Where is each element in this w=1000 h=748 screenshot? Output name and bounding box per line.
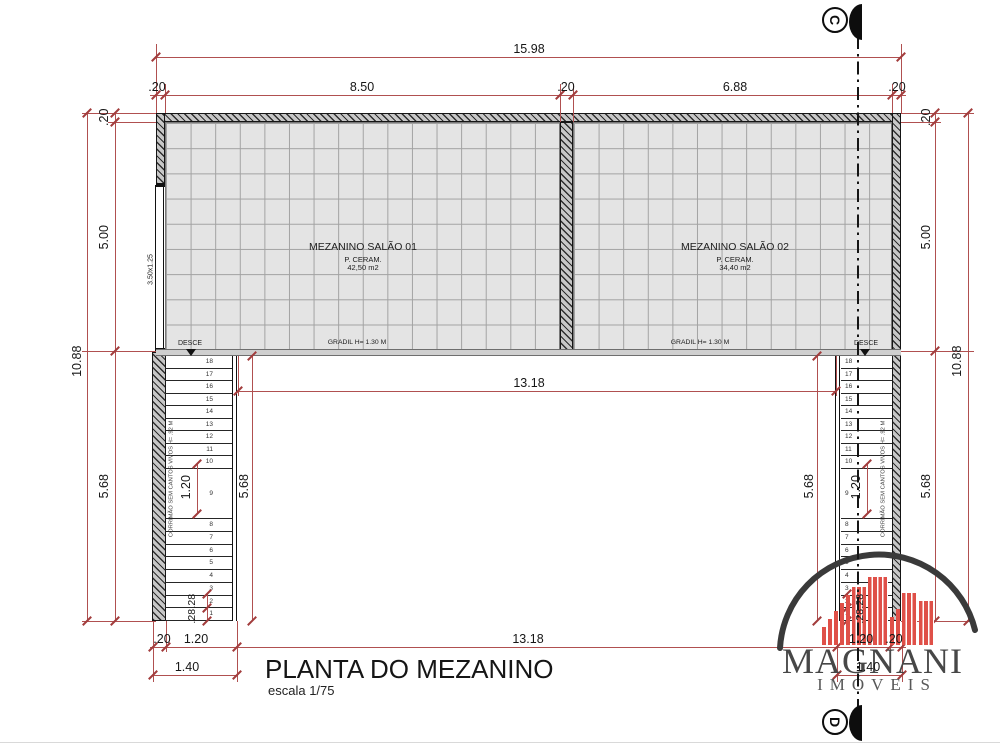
dim-tread: .28	[187, 605, 198, 627]
ext-line	[82, 621, 156, 622]
wall-middle	[560, 122, 573, 352]
room-2-area: 34,40 m2	[635, 264, 835, 272]
floor-mezanino-02	[573, 122, 892, 352]
dim-wall: .20	[98, 97, 111, 137]
handrail-label-left: CORRIMÃO SEM CANTOS VIVOS H= .92 M	[170, 391, 176, 566]
step-number: 17	[165, 369, 233, 382]
dim-opening-span: 13.18	[498, 633, 558, 646]
wall-top	[156, 113, 901, 122]
dim-line-opening-span	[238, 391, 836, 392]
ext-line	[82, 113, 156, 114]
window-left	[155, 185, 164, 352]
dim-wall: .20	[920, 97, 933, 137]
wall-left-lower	[152, 352, 166, 621]
dim-stair-depth: 5.68	[920, 466, 933, 506]
handrail-label-right: CORRIMÃO SEM CANTOS VIVOS H= .92 M	[882, 391, 888, 566]
window-size-label: 3.50x1.25	[148, 240, 155, 300]
room-1-name: MEZANINO SALÃO 01	[263, 242, 463, 253]
step-number: 3	[165, 583, 233, 596]
dim-line-overall-width	[156, 57, 901, 58]
room-1-finish: P. CERAM.	[263, 256, 463, 264]
room-label-1: MEZANINO SALÃO 01 P. CERAM. 42,50 m2	[263, 242, 463, 272]
dim-overall-width: 15.98	[499, 43, 559, 56]
step-number: 2	[165, 596, 233, 609]
logo-building	[919, 601, 934, 645]
desce-label-right: DESCE	[846, 340, 886, 347]
dim-line-landing-left	[197, 464, 198, 514]
dim-stair-depth: 5.68	[98, 466, 111, 506]
gradil-edge	[156, 349, 901, 356]
floorplan-sheet: MEZANINO SALÃO 01 P. CERAM. 42,50 m2 MEZ…	[0, 0, 1000, 748]
logo-subtitle: IMÓVEIS	[782, 675, 972, 695]
section-letter-d: D	[828, 717, 842, 727]
step-number: 17	[841, 369, 892, 382]
desce-label-left: DESCE	[170, 340, 210, 347]
dim-tread: .28	[855, 605, 866, 627]
drawing-title: PLANTA DO MEZANINO	[265, 654, 553, 685]
dim-wall: .20	[877, 81, 917, 94]
dim-stair-total: 1.40	[848, 661, 888, 674]
step-number: 18	[841, 356, 892, 369]
step-number: 18	[165, 356, 233, 369]
dim-landing: 1.20	[850, 467, 863, 507]
dim-wall: .20	[546, 81, 586, 94]
dim-wall: .20	[874, 633, 914, 646]
dim-mezz-depth: 5.00	[920, 217, 933, 257]
step-number: 4	[165, 570, 233, 583]
window-cap-top	[156, 183, 165, 187]
ext-line	[82, 351, 156, 352]
dim-opening-span: 13.18	[499, 377, 559, 390]
section-marker-c: C	[822, 7, 848, 33]
sheet-bottom-edge	[0, 742, 1000, 743]
step-number: 1	[165, 608, 233, 621]
room-2-finish: P. CERAM.	[635, 256, 835, 264]
dim-span-right: 6.88	[705, 81, 765, 94]
section-flag-d	[849, 705, 862, 741]
section-marker-d: D	[822, 709, 848, 735]
dim-overall-height: 10.88	[951, 336, 964, 386]
dim-stair-width: 1.20	[176, 633, 216, 646]
desce-arrow-right	[860, 349, 870, 356]
floor-mezanino-01	[165, 122, 560, 352]
dim-line-top-segments	[150, 95, 906, 96]
desce-arrow-left	[186, 349, 196, 356]
drawing-scale: escala 1/75	[268, 683, 335, 698]
dim-line-stairwell-left	[252, 356, 253, 621]
dim-overall-height: 10.88	[71, 336, 84, 386]
dim-stair-depth: 5.68	[803, 466, 816, 506]
section-line-cd	[857, 36, 859, 736]
room-2-name: MEZANINO SALÃO 02	[635, 242, 835, 253]
dim-landing: 1.20	[180, 467, 193, 507]
section-letter-c: C	[828, 15, 842, 25]
ext-line	[901, 113, 974, 114]
room-label-2: MEZANINO SALÃO 02 P. CERAM. 34,40 m2	[635, 242, 835, 272]
dim-line-left-outer	[87, 113, 88, 621]
room-1-area: 42,50 m2	[263, 264, 463, 272]
dim-span-left: 8.50	[332, 81, 392, 94]
dim-line-stair-total-left	[153, 675, 237, 676]
wall-left-upper	[156, 113, 165, 185]
dim-stair-total: 1.40	[167, 661, 207, 674]
dim-line-left-inner	[115, 113, 116, 621]
section-flag-c	[849, 4, 862, 40]
dim-wall: .20	[137, 81, 177, 94]
gradil-label-right: GRADIL H= 1.30 M	[650, 340, 750, 347]
gradil-label-left: GRADIL H= 1.30 M	[307, 340, 407, 347]
dim-line-landing-right	[867, 464, 868, 514]
dim-stair-depth: 5.68	[238, 466, 251, 506]
dim-mezz-depth: 5.00	[98, 217, 111, 257]
